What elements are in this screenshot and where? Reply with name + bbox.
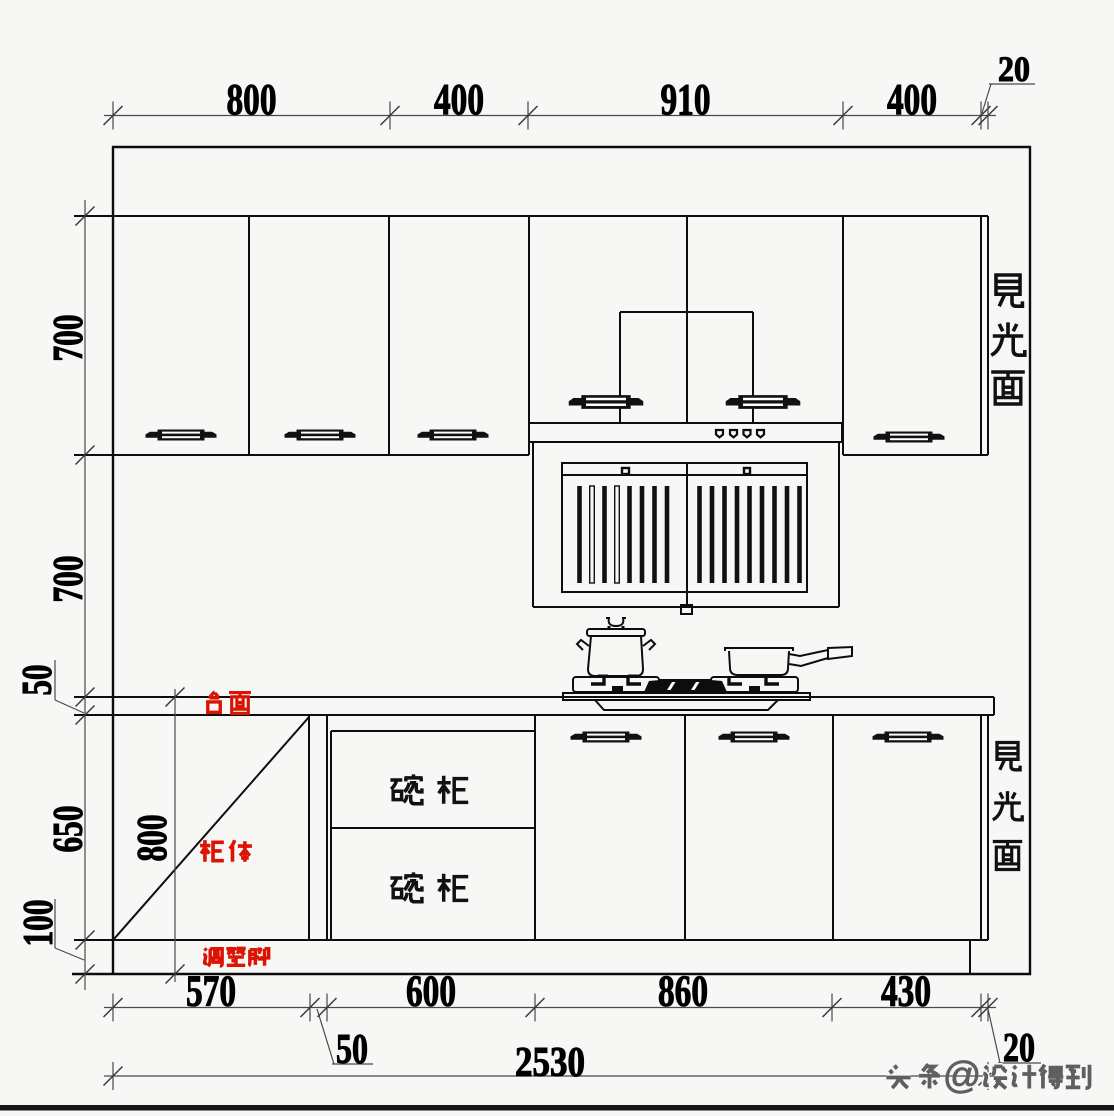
svg-text:50: 50 — [15, 665, 61, 696]
svg-text:400: 400 — [434, 75, 484, 124]
svg-text:400: 400 — [887, 75, 937, 124]
svg-text:2530: 2530 — [515, 1040, 585, 1086]
svg-text:700: 700 — [46, 556, 92, 603]
svg-text:700: 700 — [46, 315, 92, 362]
svg-text:430: 430 — [881, 967, 931, 1016]
svg-text:600: 600 — [406, 967, 456, 1016]
svg-text:100: 100 — [16, 900, 62, 947]
svg-text:910: 910 — [661, 75, 711, 124]
svg-text:650: 650 — [46, 806, 92, 853]
svg-text:50: 50 — [336, 1027, 368, 1073]
svg-text:800: 800 — [227, 75, 277, 124]
svg-text:20: 20 — [998, 49, 1030, 89]
svg-text:570: 570 — [186, 967, 236, 1016]
svg-text:20: 20 — [1003, 1024, 1035, 1070]
svg-text:@: @ — [943, 1055, 982, 1097]
svg-text:860: 860 — [658, 967, 708, 1016]
svg-text:800: 800 — [130, 815, 176, 862]
